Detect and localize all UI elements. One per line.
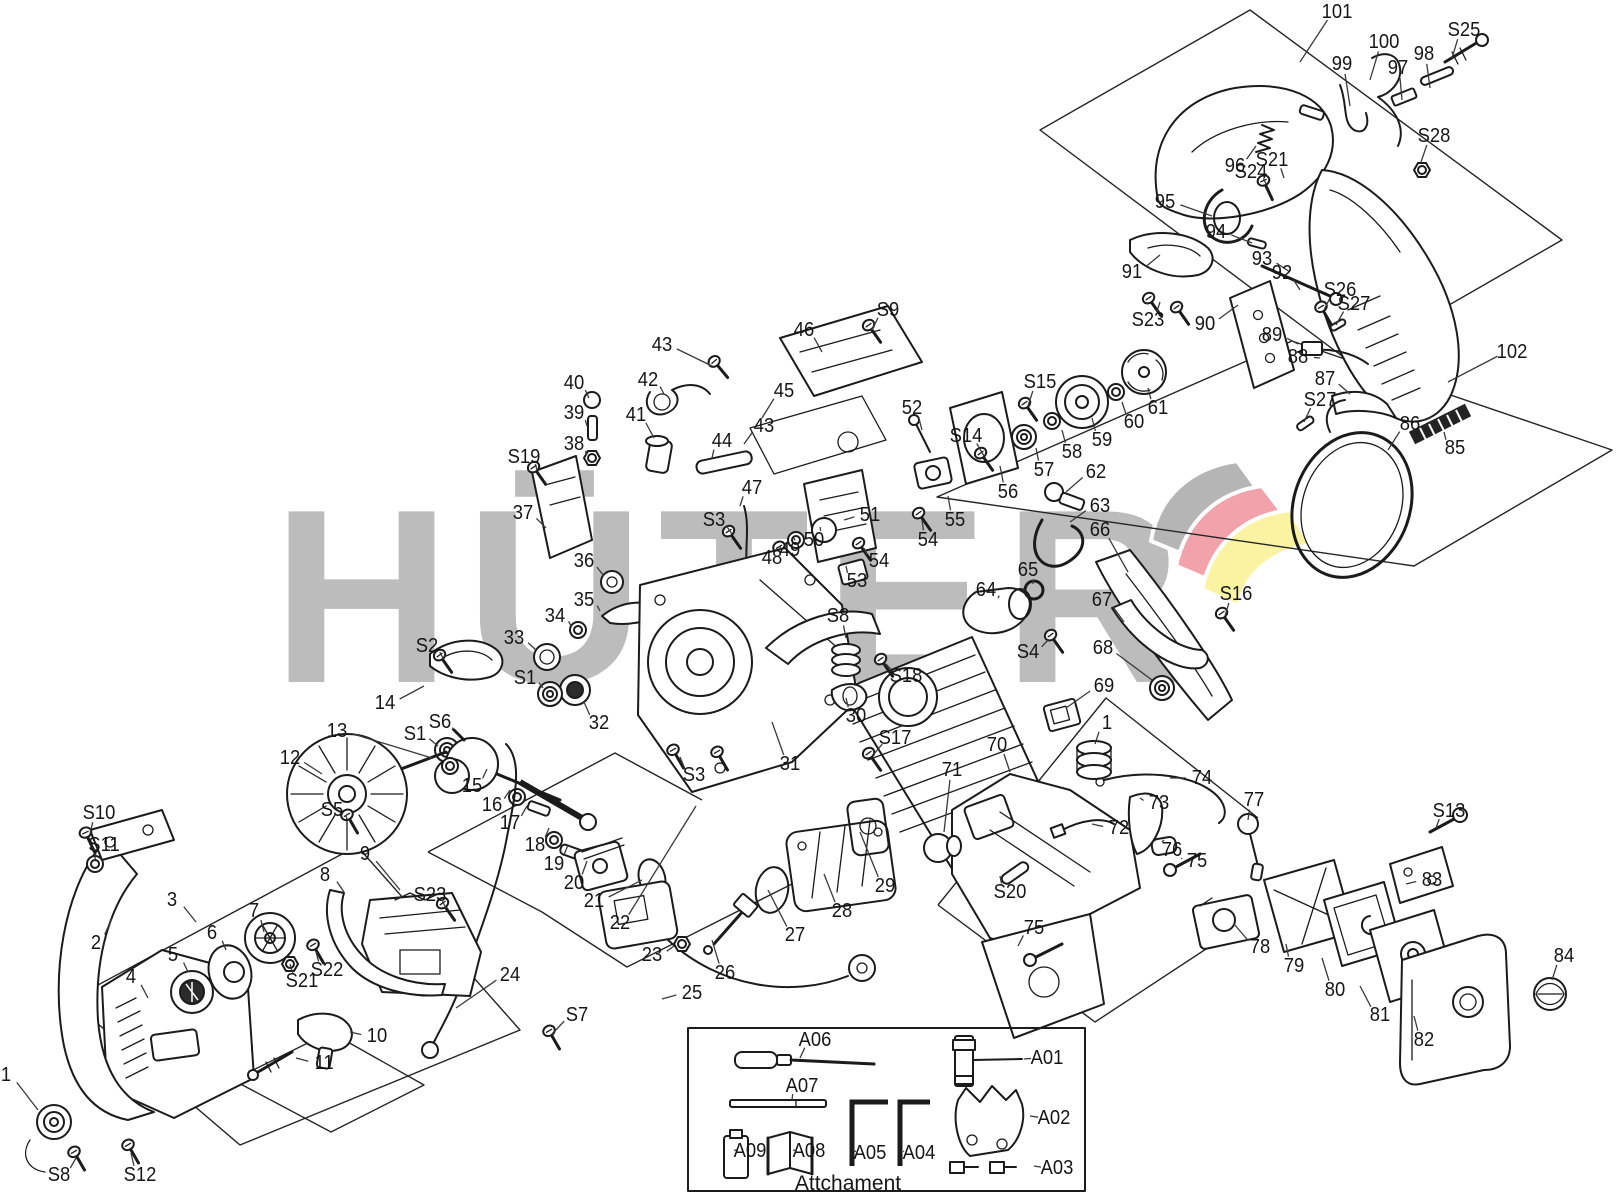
part-label-102: 102: [1497, 342, 1528, 362]
part-label-91: 91: [1122, 262, 1142, 282]
part-label-s10: S10: [83, 803, 116, 823]
part-label-75: 75: [1024, 918, 1044, 938]
part-label-s4: S4: [1017, 642, 1040, 662]
part-label-s5: S5: [321, 800, 344, 820]
part-label-101: 101: [1322, 2, 1353, 22]
part-label-25: 25: [682, 983, 702, 1003]
part-label-76: 76: [1162, 840, 1182, 860]
part-label-55: 55: [945, 510, 965, 530]
part-label-50: 50: [804, 530, 824, 550]
part-label-2: 2: [91, 933, 101, 953]
part-label-s23: S23: [414, 885, 447, 905]
part-label-95: 95: [1155, 192, 1175, 212]
part-label-56: 56: [998, 482, 1018, 502]
part-label-93: 93: [1252, 249, 1272, 269]
part-label-43: 43: [652, 335, 672, 355]
part-label-18: 18: [525, 835, 545, 855]
part-label-s6: S6: [429, 712, 452, 732]
part-label-64: 64: [976, 580, 996, 600]
part-label-15: 15: [462, 776, 482, 796]
part-label-27: 27: [785, 925, 805, 945]
part-label-a05: A05: [854, 1143, 887, 1163]
part-label-s27: S27: [1304, 390, 1337, 410]
part-label-77: 77: [1244, 790, 1264, 810]
diagram-page: HÜTER: [0, 0, 1618, 1196]
part-label-88: 88: [1288, 347, 1308, 367]
part-label-s28: S28: [1418, 126, 1451, 146]
part-label-89: 89: [1262, 325, 1282, 345]
part-label-29: 29: [875, 876, 895, 896]
part-label-49: 49: [780, 540, 800, 560]
part-label-s1: S1: [514, 668, 537, 688]
part-label-99: 99: [1332, 54, 1352, 74]
part-label-s14: S14: [950, 426, 983, 446]
part-label-58: 58: [1062, 442, 1082, 462]
part-label-s8: S8: [827, 606, 850, 626]
part-label-47: 47: [742, 478, 762, 498]
part-label-a07: A07: [786, 1076, 819, 1096]
part-label-43: 43: [754, 416, 774, 436]
part-label-a02: A02: [1038, 1108, 1071, 1128]
part-label-81: 81: [1370, 1005, 1390, 1025]
part-label-17: 17: [500, 813, 520, 833]
part-label-a09: A09: [734, 1141, 767, 1161]
part-label-s15: S15: [1024, 372, 1057, 392]
part-label-72: 72: [1109, 818, 1129, 838]
part-label-63: 63: [1090, 496, 1110, 516]
part-label-s19: S19: [508, 447, 541, 467]
part-label-61: 61: [1148, 398, 1168, 418]
part-label-67: 67: [1092, 590, 1112, 610]
part-label-s17: S17: [879, 728, 912, 748]
part-label-51: 51: [860, 505, 880, 525]
part-label-62: 62: [1086, 462, 1106, 482]
part-label-65: 65: [1018, 560, 1038, 580]
part-label-83: 83: [1422, 870, 1442, 890]
part-label-30: 30: [846, 706, 866, 726]
part-label-33: 33: [504, 628, 524, 648]
part-label-s25: S25: [1448, 20, 1481, 40]
part-label-90: 90: [1195, 314, 1215, 334]
part-label-28: 28: [832, 901, 852, 921]
part-label-84: 84: [1554, 946, 1574, 966]
part-label-42: 42: [638, 370, 658, 390]
part-label-38: 38: [564, 434, 584, 454]
part-label-s3: S3: [703, 510, 726, 530]
part-label-54: 54: [918, 530, 938, 550]
part-label-34: 34: [545, 606, 565, 626]
part-label-21: 21: [584, 891, 604, 911]
part-label-8: 8: [320, 865, 330, 885]
part-label-46: 46: [794, 320, 814, 340]
part-label-53: 53: [847, 571, 867, 591]
part-label-s21: S21: [286, 971, 319, 991]
part-label-80: 80: [1325, 980, 1345, 1000]
part-label-1: 1: [1102, 713, 1112, 733]
part-label-14: 14: [375, 693, 395, 713]
part-label-92: 92: [1272, 263, 1292, 283]
part-label-94: 94: [1206, 222, 1226, 242]
part-label-s18: S18: [890, 666, 923, 686]
part-label-40: 40: [564, 373, 584, 393]
part-label-66: 66: [1090, 520, 1110, 540]
part-label-6: 6: [207, 923, 217, 943]
part-label-37: 37: [513, 503, 533, 523]
part-label-98: 98: [1414, 44, 1434, 64]
part-label-s9: S9: [877, 300, 900, 320]
part-label-71: 71: [942, 760, 962, 780]
part-label-s20: S20: [994, 882, 1027, 902]
part-label-9: 9: [360, 844, 370, 864]
part-label-s11: S11: [88, 835, 119, 855]
part-label-60: 60: [1124, 412, 1144, 432]
part-label-1: 1: [1, 1065, 11, 1085]
part-label-10: 10: [367, 1026, 387, 1046]
part-label-41: 41: [626, 405, 646, 425]
part-label-23: 23: [642, 945, 662, 965]
part-label-44: 44: [712, 431, 732, 451]
part-label-87: 87: [1315, 369, 1335, 389]
part-label-31: 31: [780, 754, 800, 774]
part-label-s1: S1: [404, 724, 427, 744]
part-label-52: 52: [902, 398, 922, 418]
part-label-20: 20: [564, 873, 584, 893]
part-label-78: 78: [1250, 937, 1270, 957]
part-label-74: 74: [1192, 768, 1212, 788]
labels-layer: 101100999798S25S2896S24S2195949392S26S27…: [0, 0, 1618, 1196]
part-label-4: 4: [126, 967, 136, 987]
part-label-s27: S27: [1338, 294, 1371, 314]
part-label-s13: S13: [1433, 801, 1466, 821]
part-label-86: 86: [1400, 414, 1420, 434]
part-label-a04: A04: [903, 1143, 936, 1163]
part-label-39: 39: [564, 403, 584, 423]
part-label-97: 97: [1388, 58, 1408, 78]
part-label-s2: S2: [416, 636, 439, 656]
part-label-35: 35: [574, 590, 594, 610]
part-label-3: 3: [167, 890, 177, 910]
part-label-82: 82: [1414, 1030, 1434, 1050]
part-label-73: 73: [1149, 793, 1169, 813]
part-label-85: 85: [1445, 438, 1465, 458]
part-label-a08: A08: [793, 1141, 826, 1161]
part-label-s23: S23: [1132, 310, 1165, 330]
part-label-68: 68: [1093, 638, 1113, 658]
part-label-32: 32: [589, 713, 609, 733]
part-label-19: 19: [544, 854, 564, 874]
part-label-70: 70: [987, 735, 1007, 755]
part-label-75: 75: [1187, 851, 1207, 871]
part-label-45: 45: [774, 381, 794, 401]
part-label-24: 24: [500, 965, 520, 985]
part-label-a01: A01: [1031, 1048, 1064, 1068]
attachment-box-title: Attchament: [795, 1172, 901, 1196]
part-label-11: 11: [314, 1053, 333, 1073]
part-label-7: 7: [249, 901, 259, 921]
part-label-54: 54: [869, 551, 889, 571]
part-label-69: 69: [1094, 676, 1114, 696]
part-label-s8: S8: [48, 1165, 71, 1185]
part-label-s3: S3: [683, 765, 706, 785]
part-label-13: 13: [327, 721, 347, 741]
part-label-100: 100: [1369, 32, 1400, 52]
part-label-a03: A03: [1041, 1158, 1074, 1178]
part-label-s16: S16: [1220, 584, 1253, 604]
part-label-36: 36: [574, 551, 594, 571]
part-label-57: 57: [1034, 460, 1054, 480]
part-label-s7: S7: [566, 1005, 589, 1025]
part-label-a06: A06: [799, 1030, 832, 1050]
part-label-22: 22: [610, 913, 630, 933]
part-label-26: 26: [715, 963, 735, 983]
part-label-79: 79: [1284, 956, 1304, 976]
part-label-59: 59: [1092, 430, 1112, 450]
part-label-12: 12: [280, 748, 300, 768]
part-label-s12: S12: [124, 1165, 157, 1185]
part-label-s21: S21: [1256, 150, 1289, 170]
part-label-5: 5: [168, 945, 178, 965]
